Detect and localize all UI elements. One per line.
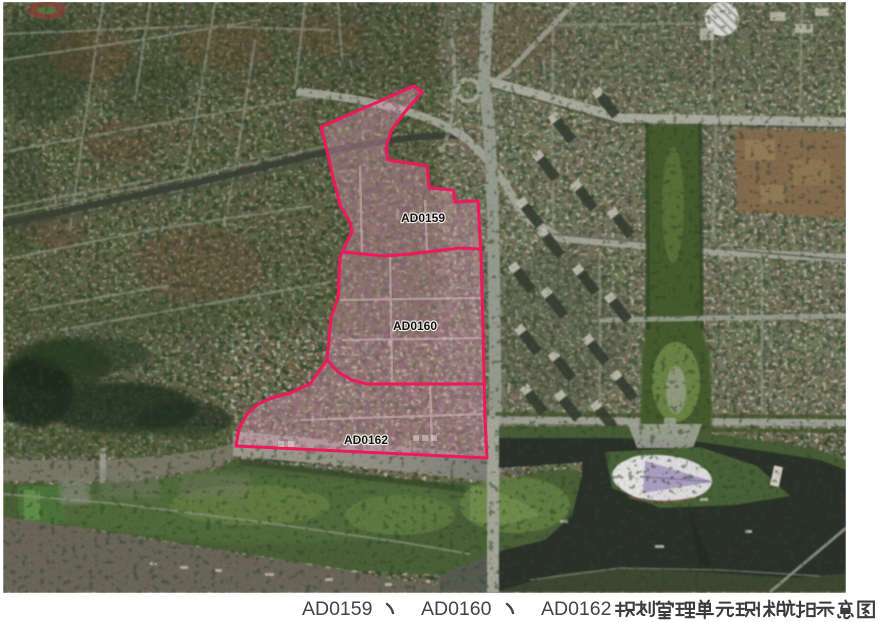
svg-text:AD0162: AD0162 bbox=[541, 598, 611, 620]
svg-text:AD0159: AD0159 bbox=[401, 211, 445, 225]
svg-text:AD0160: AD0160 bbox=[393, 319, 437, 333]
svg-text:AD0160: AD0160 bbox=[421, 598, 492, 620]
svg-text:AD0159: AD0159 bbox=[302, 598, 372, 620]
svg-text:AD0162: AD0162 bbox=[344, 433, 388, 447]
